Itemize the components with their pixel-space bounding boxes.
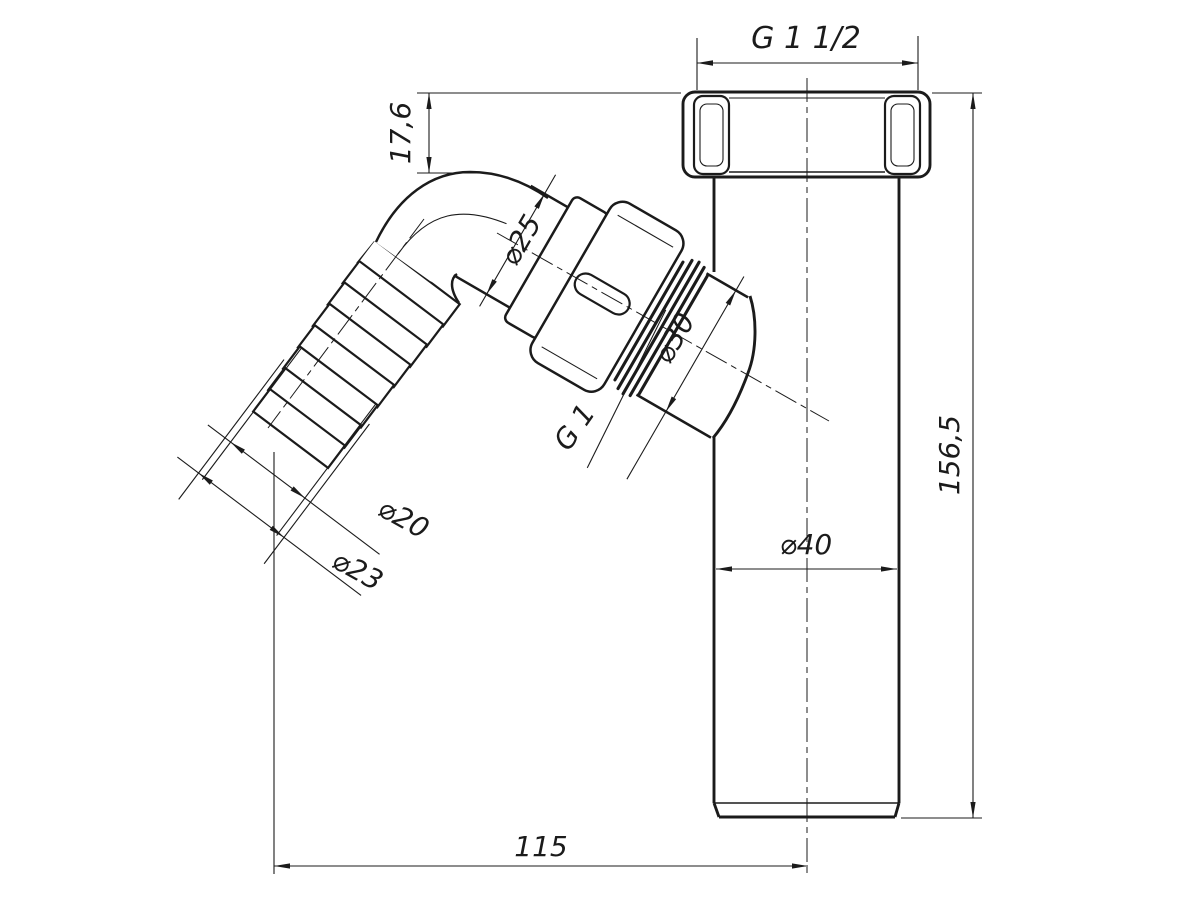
label-branch-port-dia: ⌀30 [647,307,702,369]
label-branch-thread: G 1 [547,398,602,457]
label-total-height: 156,5 [933,415,966,495]
label-barb-groove-dia: ⌀20 [373,491,435,545]
label-tube-dia: ⌀40 [780,528,833,561]
technical-drawing: ⌀25 ⌀30 G 1 [0,0,1200,900]
extension-line [179,360,284,500]
port-edge [706,273,748,297]
label-thread-top: G 1 1/2 [751,21,861,56]
label-horizontal-length: 115 [514,830,567,863]
label-barb-crest-dia: ⌀23 [327,543,389,597]
dim-horizontal-length: 115 [274,452,808,874]
top-nut-flat-right [885,96,920,174]
tube-bottom-chamfer [714,803,719,817]
top-nut-flat-left [694,96,729,174]
dim-nut-height: 17,6 [384,93,681,173]
main-tube [713,177,899,817]
drawing-sheet: ⌀25 ⌀30 G 1 [0,0,1200,900]
tube-bottom-chamfer [895,803,899,817]
dim-total-height: 156,5 [901,93,982,818]
label-nut-height: 17,6 [384,102,417,164]
